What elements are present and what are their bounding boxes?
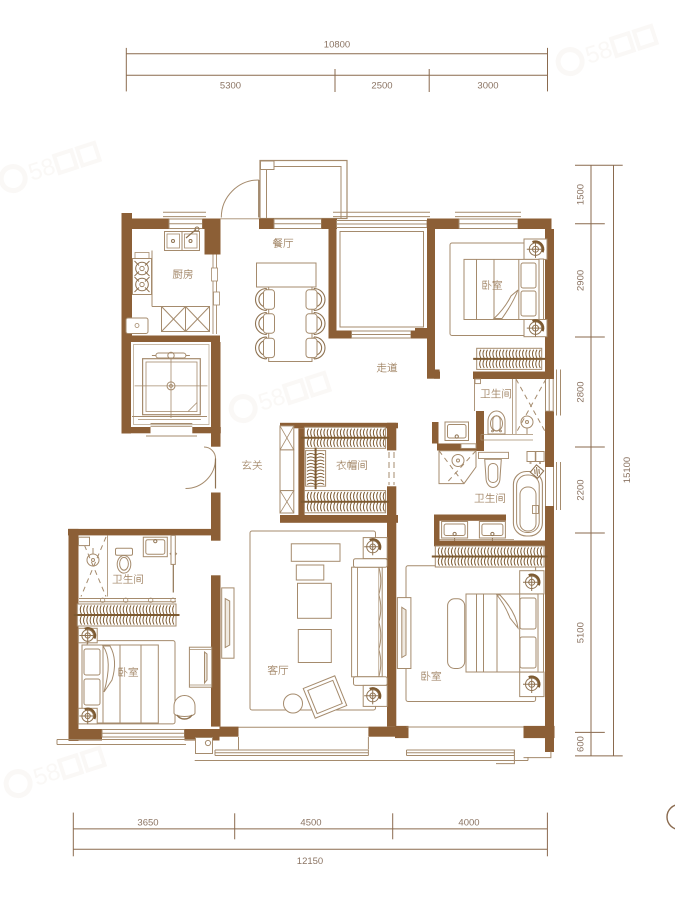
svg-text:3650: 3650 [137, 818, 158, 829]
svg-text:5100: 5100 [576, 622, 587, 643]
svg-text:15100: 15100 [622, 457, 633, 483]
svg-text:1500: 1500 [576, 184, 587, 205]
svg-text:12150: 12150 [297, 856, 323, 867]
svg-text:10800: 10800 [324, 40, 350, 51]
svg-text:600: 600 [576, 736, 587, 752]
svg-text:4500: 4500 [300, 818, 321, 829]
svg-text:2900: 2900 [576, 270, 587, 291]
svg-text:5300: 5300 [220, 81, 241, 92]
svg-text:2800: 2800 [576, 381, 587, 402]
svg-text:3000: 3000 [477, 81, 498, 92]
svg-text:2500: 2500 [371, 81, 392, 92]
svg-text:4000: 4000 [458, 818, 479, 829]
svg-text:2200: 2200 [576, 479, 587, 500]
